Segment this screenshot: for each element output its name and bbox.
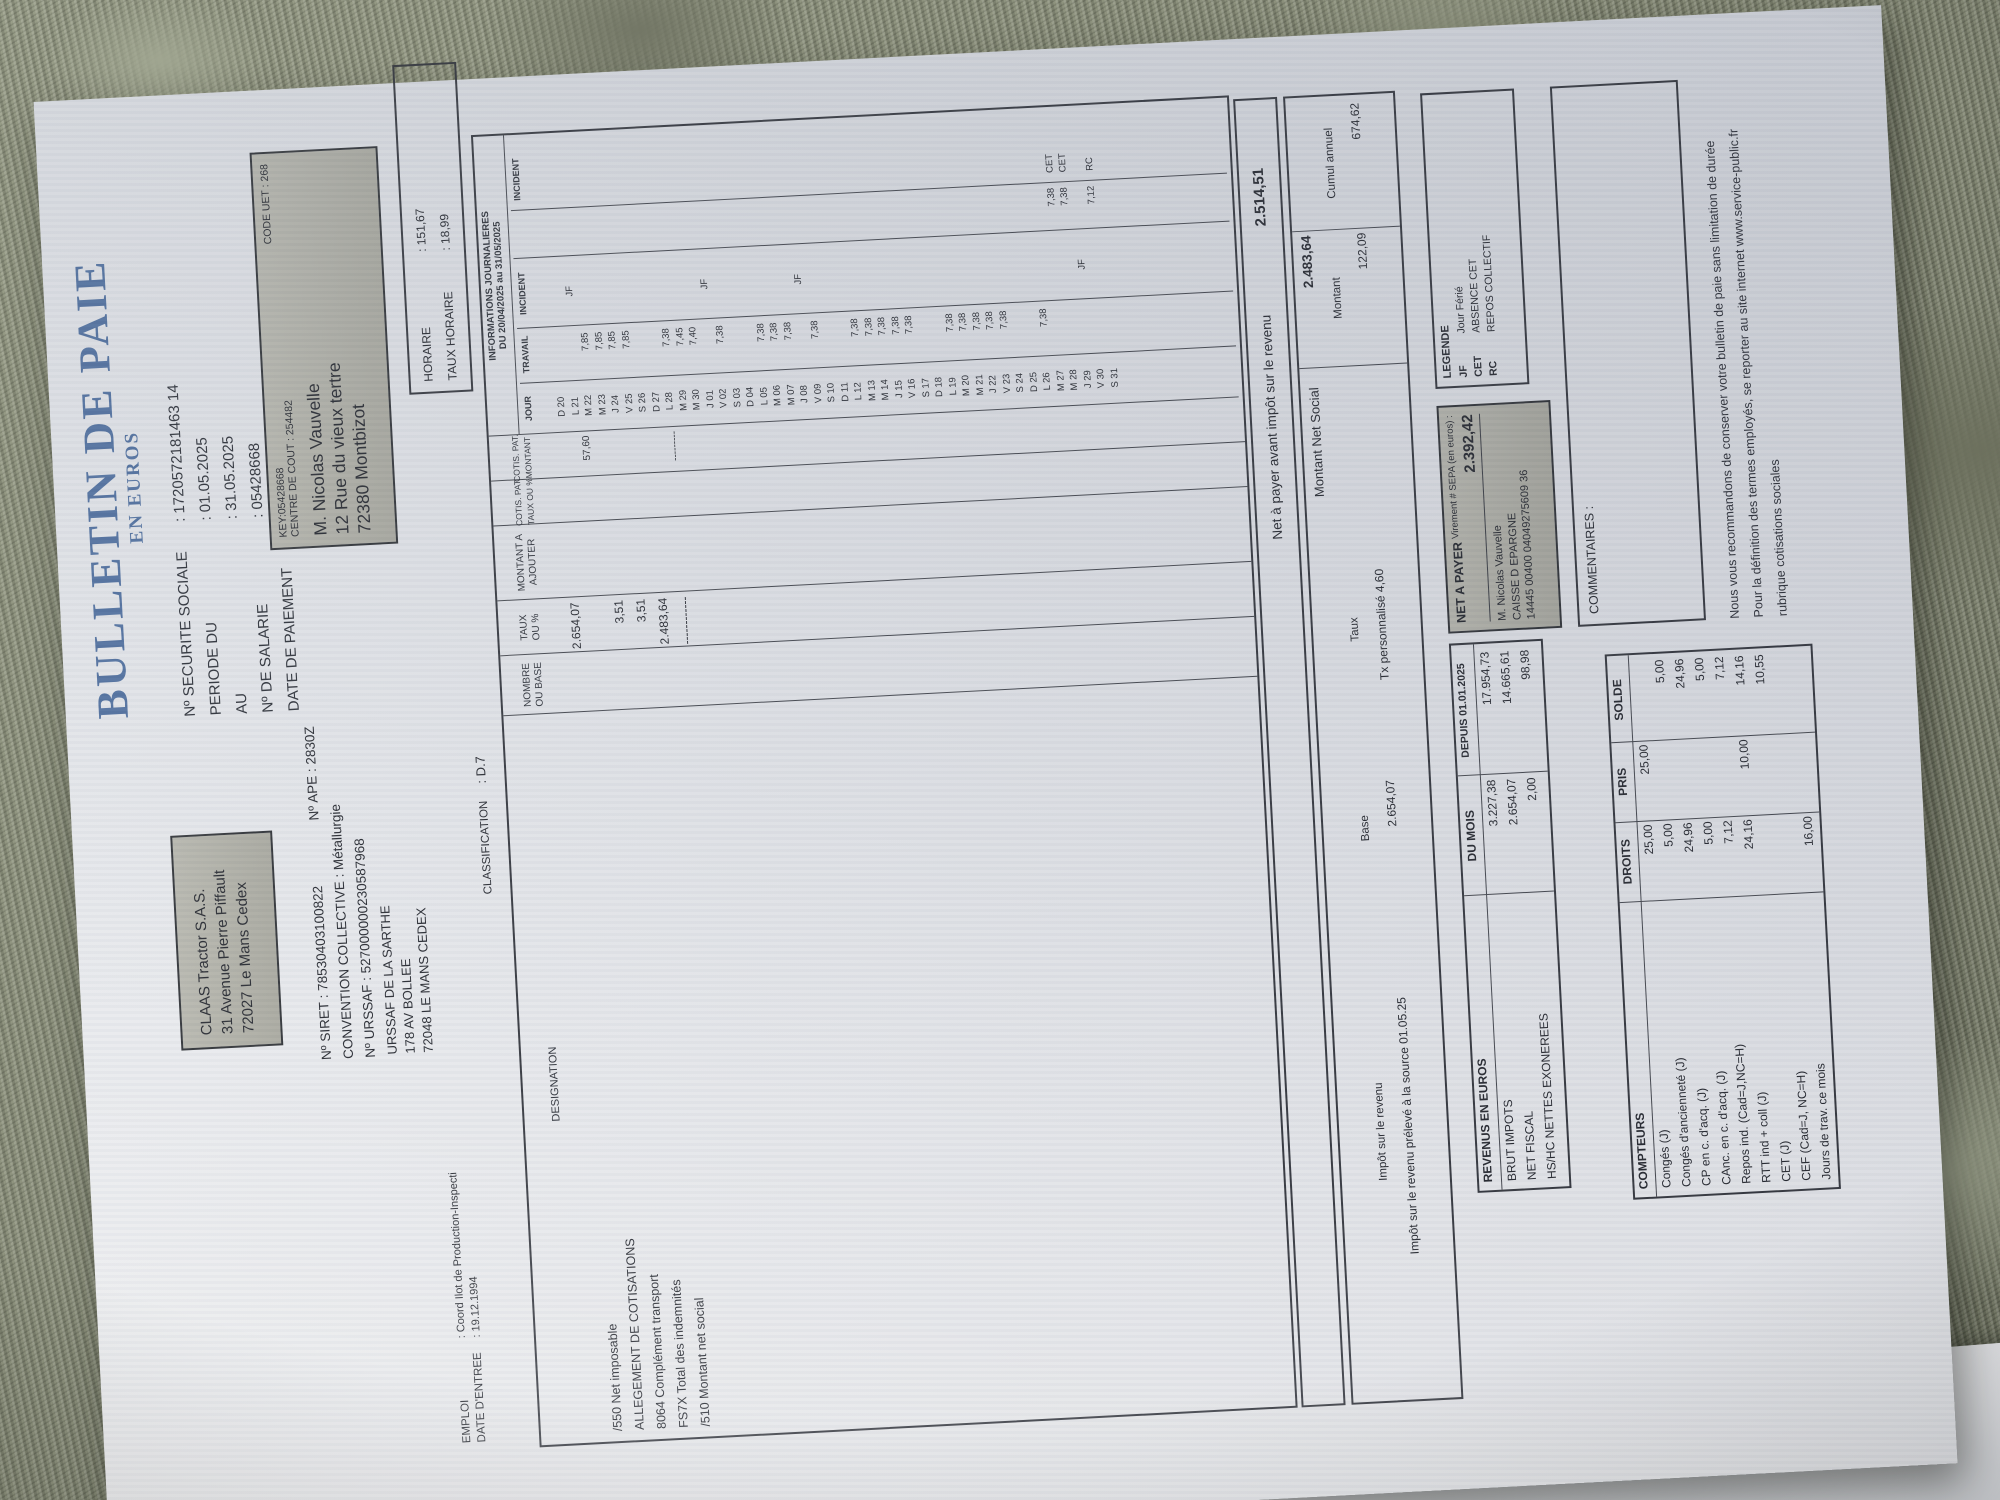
photo-background: BULLETIN DE PAIE EN EUROS Nº SECURITE SO…	[0, 0, 2000, 1500]
counter-droits: 5,00	[1701, 821, 1719, 894]
cotis-pat-montant-value	[603, 435, 605, 479]
col-header-line: OU BASE	[532, 654, 547, 715]
counter-droits: 24,96	[1681, 822, 1699, 895]
registration-block: Nº SIRET : 78530403100822 Nº APE : 2830Z…	[299, 723, 382, 1060]
counter-droits: 25,00	[1641, 824, 1659, 897]
revenus-mois-value: 2,00	[1524, 777, 1544, 888]
col-header-nombre: NOMBRE OU BASE	[520, 654, 547, 715]
legend-code: RC	[1485, 332, 1502, 377]
designation-text: /550 Net imposable	[605, 1323, 625, 1431]
cotis-pat-montant-value	[625, 434, 627, 478]
counter-label: RTT ind + coll (J)	[1755, 1091, 1774, 1183]
cotis-pat-montant-value	[647, 432, 649, 476]
net-before-tax-value: 2.514,51	[1250, 168, 1274, 299]
counter-solde	[1772, 654, 1776, 730]
col-header-taux: TAUX OU %	[517, 599, 544, 655]
col-header-line: TAUX OU %	[523, 476, 538, 527]
revenus-title: REVENUS EN EUROS	[1475, 1058, 1495, 1183]
counter-solde	[1632, 661, 1636, 737]
counters-table: COMPTEURS DROITS PRIS SOLDE Congés (J) 2…	[1605, 644, 1841, 1200]
counter-pris	[1696, 742, 1700, 814]
net-social-label: Montant Net Social	[1306, 387, 1327, 497]
counter-droits: 24,16	[1740, 819, 1758, 892]
revenus-row-label: NET FISCAL	[1521, 1111, 1539, 1181]
main-table: DESIGNATION NOMBRE OU BASE TAUX OU % MON…	[471, 95, 1298, 1447]
classification: CLASSIFICATION : D.7	[472, 756, 494, 895]
cotis-pat-montant-value	[559, 437, 561, 481]
counter-solde: 14,16	[1732, 655, 1750, 732]
horaire-value: : 151,67	[408, 208, 434, 253]
job-left: EMPLOI: Coord Ilot de Production-Inspect…	[446, 1171, 490, 1444]
counter-pris: 10,00	[1736, 739, 1754, 812]
day-label: S 31	[1107, 352, 1123, 403]
revenus-mois-value: 2.654,07	[1504, 778, 1524, 889]
col-header-cotis-taux: COTIS. PAT. TAUX OU %	[511, 476, 538, 527]
counter-droits	[1760, 819, 1764, 891]
grid-header-incident: INCIDENT	[515, 258, 529, 328]
counters-col-droits: DROITS	[1618, 825, 1636, 898]
col-header-montant-ajouter: MONTANT A AJOUTER	[513, 524, 541, 600]
day-incident	[1100, 228, 1117, 299]
counter-solde: 10,55	[1752, 654, 1770, 731]
code-uet: CODE UET : 268	[258, 163, 286, 244]
counter-solde: 7,12	[1712, 656, 1730, 733]
comments-box: COMMENTAIRES :	[1550, 80, 1706, 627]
horaire-box: HORAIRE: 151,67 TAUX HORAIRE: 18,99	[392, 62, 473, 395]
bank-details: M. Nicolas VauvelleCAISSE D EPARGNE14445…	[1485, 411, 1539, 621]
employee-key: KEY:05428668 CENTRE DE COUT : 254482	[271, 400, 302, 538]
revenus-depuis-value: 17.954,73	[1477, 651, 1497, 770]
counter-label: Jours de trav. ce mois	[1813, 1063, 1833, 1180]
counter-pris	[1656, 744, 1660, 816]
classification-label: CLASSIFICATION	[478, 800, 495, 894]
grid-header-jour: JOUR	[522, 383, 535, 433]
net-social-value: 2.483,64	[1298, 235, 1320, 364]
montant-ajouter-value: 2.483,64	[655, 597, 674, 703]
tax-rate-header: Taux	[1348, 617, 1361, 642]
net-a-payer-box: NET A PAYER Virement # SEPA (en euros) :…	[1436, 400, 1562, 634]
legend-box: LEGENDE JF Jour Férié CET ABSENCE CET	[1420, 89, 1529, 390]
grid-header: JOUR TRAVAIL INCIDENT INCIDENT	[509, 135, 535, 434]
revenus-depuis-value: 14.665,61	[1497, 650, 1517, 769]
counter-label: CET (J)	[1777, 1140, 1793, 1182]
revenus-row-label: BRUT IMPOTS	[1501, 1099, 1519, 1181]
col-header-line: OU %	[529, 599, 544, 655]
classification-value: : D.7	[472, 756, 488, 784]
cotis-pat-montant-value: ---------	[669, 431, 682, 476]
payslip-sheet-wrapper: BULLETIN DE PAIE EN EUROS Nº SECURITE SO…	[34, 5, 1958, 1500]
tax-base-header: Base	[1359, 815, 1372, 842]
employee-box: KEY:05428668 CENTRE DE COUT : 254482 COD…	[250, 146, 399, 550]
employer-box: CLAAS Tractor S.A.S.31 Avenue Pierre Pif…	[170, 831, 283, 1051]
net-before-tax-label: Net à payer avant impôt sur le revenu	[1258, 314, 1285, 540]
payslip-sheet: BULLETIN DE PAIE EN EUROS Nº SECURITE SO…	[34, 5, 1958, 1500]
day-travail	[1104, 298, 1120, 354]
day-second-value	[1098, 180, 1114, 229]
montant-ajouter-value: ------------	[677, 596, 696, 702]
grid-header-incident2: INCIDENT	[509, 135, 523, 211]
counter-solde: 5,00	[1652, 659, 1670, 736]
counter-pris	[1776, 738, 1780, 810]
revenus-depuis-value: 98,98	[1517, 649, 1537, 768]
grid-header-second-value	[513, 211, 525, 259]
counters-col-pris: PRIS	[1613, 745, 1631, 818]
tax-header: Impôt sur le revenu	[1373, 1082, 1390, 1181]
montant-ajouter-value: 2.654,07	[568, 602, 587, 708]
tax-montant-header: Montant	[1328, 234, 1347, 362]
counters-rows: Congés (J) 25,00 25,00 Congés d'ancienne…	[1630, 646, 1838, 1197]
counter-droits: 7,12	[1721, 820, 1739, 893]
daily-grid: INFORMATIONS JOURNALIERES DU 20/04/2025 …	[473, 98, 1239, 437]
counter-solde: 5,00	[1692, 657, 1710, 734]
counter-label: Congés d'ancienneté (J)	[1673, 1057, 1694, 1187]
date-entree-value: : 19.12.1994	[468, 1276, 483, 1338]
revenus-table: REVENUS EN EUROS DU MOIS DEPUIS 01.01.20…	[1449, 639, 1572, 1193]
counter-label: CAnc. en c. d'acq. (J)	[1714, 1070, 1734, 1185]
counter-pris	[1716, 741, 1720, 813]
col-header-cotis-montant: COTIS. PAT. MONTANT	[509, 433, 535, 482]
montant-ajouter-value: 3,51	[633, 599, 652, 705]
counter-pris	[1796, 737, 1800, 809]
counter-pris	[1756, 739, 1760, 811]
fine-print: Nous vous recommandons de conserver votr…	[1694, 71, 1794, 619]
grid-rows: D 20 L 21 JF	[541, 104, 1123, 432]
ape: Nº APE : 2830Z	[302, 726, 322, 821]
comments-label: COMMENTAIRES :	[1582, 506, 1602, 615]
montant-ajouter-value: 3,51	[611, 600, 630, 706]
designation-header: DESIGNATION	[543, 984, 565, 1184]
taux-horaire-value: : 18,99	[432, 213, 458, 251]
day-incident2	[1094, 104, 1111, 181]
employee-address: M. Nicolas Vauvelle12 Rue du vieux tertr…	[290, 159, 375, 536]
revenus-mois-value: 3.227,38	[1484, 779, 1504, 890]
counter-droits: 5,00	[1661, 823, 1679, 896]
revenus-col1: DU MOIS	[1461, 780, 1481, 891]
designation-rows: /550 Net imposable 2.654,07 ALLEGEMENT D…	[557, 426, 742, 1442]
col-header-line: MONTANT	[521, 433, 535, 482]
counter-pris	[1676, 743, 1680, 815]
counter-solde: 24,96	[1672, 658, 1690, 735]
counter-pris: 25,00	[1636, 744, 1654, 817]
tax-cumul-header: Cumul annuel	[1321, 104, 1339, 222]
counter-solde	[1792, 653, 1796, 729]
designation-text: /510 Montant net social	[692, 1297, 713, 1427]
cotis-pat-montant-value: 57,60	[581, 435, 594, 480]
counter-label: CEF (Cad=J, NC=H)	[1794, 1070, 1814, 1181]
grid-header-travail: TRAVAIL	[519, 328, 532, 383]
counter-label: CP en c. d'acq. (J)	[1694, 1088, 1713, 1187]
counter-droits: 16,00	[1800, 816, 1818, 889]
tax-base-value: 2.654,07	[1383, 780, 1402, 881]
counters-title: COMPTEURS	[1633, 1112, 1651, 1189]
counter-label: Congés (J)	[1657, 1129, 1674, 1188]
counters-col-solde: SOLDE	[1609, 662, 1627, 739]
counter-droits	[1780, 818, 1784, 890]
revenus-col2: DEPUIS 01.01.2025	[1454, 648, 1473, 773]
